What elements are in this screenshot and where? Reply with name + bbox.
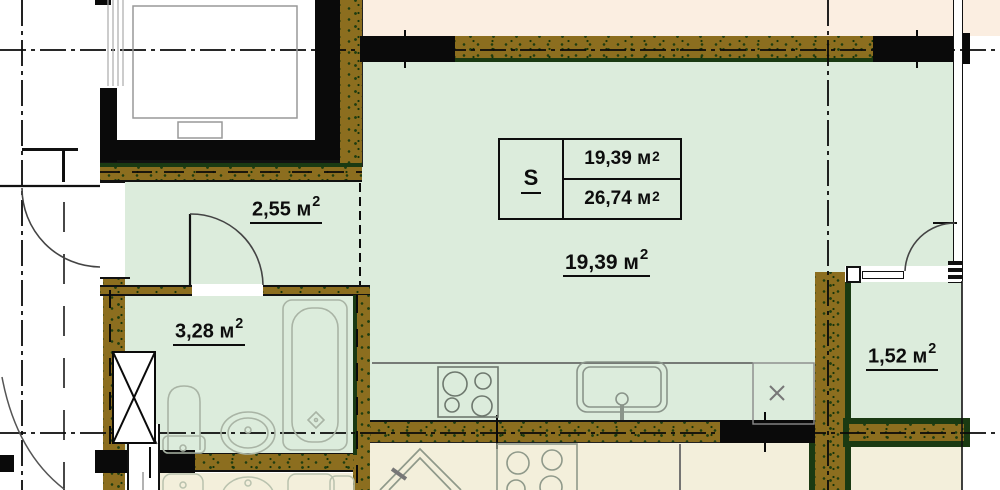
label-living-area: 19,39 м2 bbox=[563, 249, 650, 277]
label-bathroom-area: 3,28 м2 bbox=[173, 319, 245, 346]
wall-right-interior-edge-left bbox=[809, 443, 815, 490]
lower-balcony-room bbox=[849, 445, 962, 490]
lower-door-niche bbox=[127, 424, 160, 490]
area-table-row-total: 26,74 м2 bbox=[564, 180, 680, 218]
area-symbol: S bbox=[521, 165, 542, 194]
label-balcony-area: 1,52 м2 bbox=[866, 344, 938, 371]
exterior-strip-top bbox=[360, 0, 1000, 36]
wall-black-top-left-segment bbox=[360, 36, 455, 62]
floor-plan: S 19,39 м2 26,74 м2 2,55 м2 3,28 м2 19,3… bbox=[0, 0, 1000, 490]
wall-left-of-living bbox=[340, 0, 363, 167]
lower-apartment-room bbox=[370, 443, 815, 490]
elevator-shaft bbox=[112, 0, 315, 140]
bathroom-door-opening bbox=[192, 284, 263, 296]
wall-hallway-top-line bbox=[100, 180, 362, 182]
area-table-row-living: 19,39 м2 bbox=[564, 140, 680, 180]
elevator-wall-bottom bbox=[105, 140, 340, 160]
wall-bathroom-right-edge bbox=[353, 295, 357, 455]
entrance-door bbox=[0, 186, 100, 267]
wall-bathroom-bottom bbox=[195, 453, 355, 472]
elevator-wall-right bbox=[315, 0, 340, 160]
wall-black-bottom-right-segment bbox=[720, 420, 815, 443]
elevator-wall-top-bit bbox=[95, 0, 111, 5]
wall-kitchen-bottom bbox=[370, 420, 720, 443]
entrance-jamb-bottom bbox=[100, 277, 130, 279]
window-right bbox=[953, 0, 963, 281]
wall-right-interior-edge bbox=[845, 272, 851, 490]
balcony-partition-post bbox=[846, 266, 861, 283]
area-table: S 19,39 м2 26,74 м2 bbox=[498, 138, 682, 220]
corridor-wall-line bbox=[22, 148, 78, 151]
label-hallway-area: 2,55 м2 bbox=[250, 197, 322, 224]
wall-hallway-top bbox=[100, 167, 362, 180]
wall-top-exterior bbox=[455, 36, 873, 58]
corridor-wall-line-vert bbox=[62, 150, 65, 182]
entrance-jamb-top bbox=[100, 181, 125, 183]
wall-bathroom-top-left bbox=[100, 285, 192, 296]
elevator-wall-left bbox=[100, 88, 117, 162]
wall-right-interior bbox=[815, 272, 845, 490]
area-table-symbol-cell: S bbox=[500, 140, 564, 218]
wall-balcony-bottom bbox=[849, 424, 964, 441]
wall-black-corridor-piece bbox=[0, 455, 14, 472]
room-hallway bbox=[125, 180, 362, 285]
wall-black-top-right-segment bbox=[873, 36, 963, 62]
lower-apartment-bathroom bbox=[160, 473, 355, 490]
balcony-door-jamb bbox=[948, 261, 962, 283]
wall-top-inner-edge bbox=[455, 58, 873, 62]
balcony-partition-sill bbox=[862, 271, 904, 279]
